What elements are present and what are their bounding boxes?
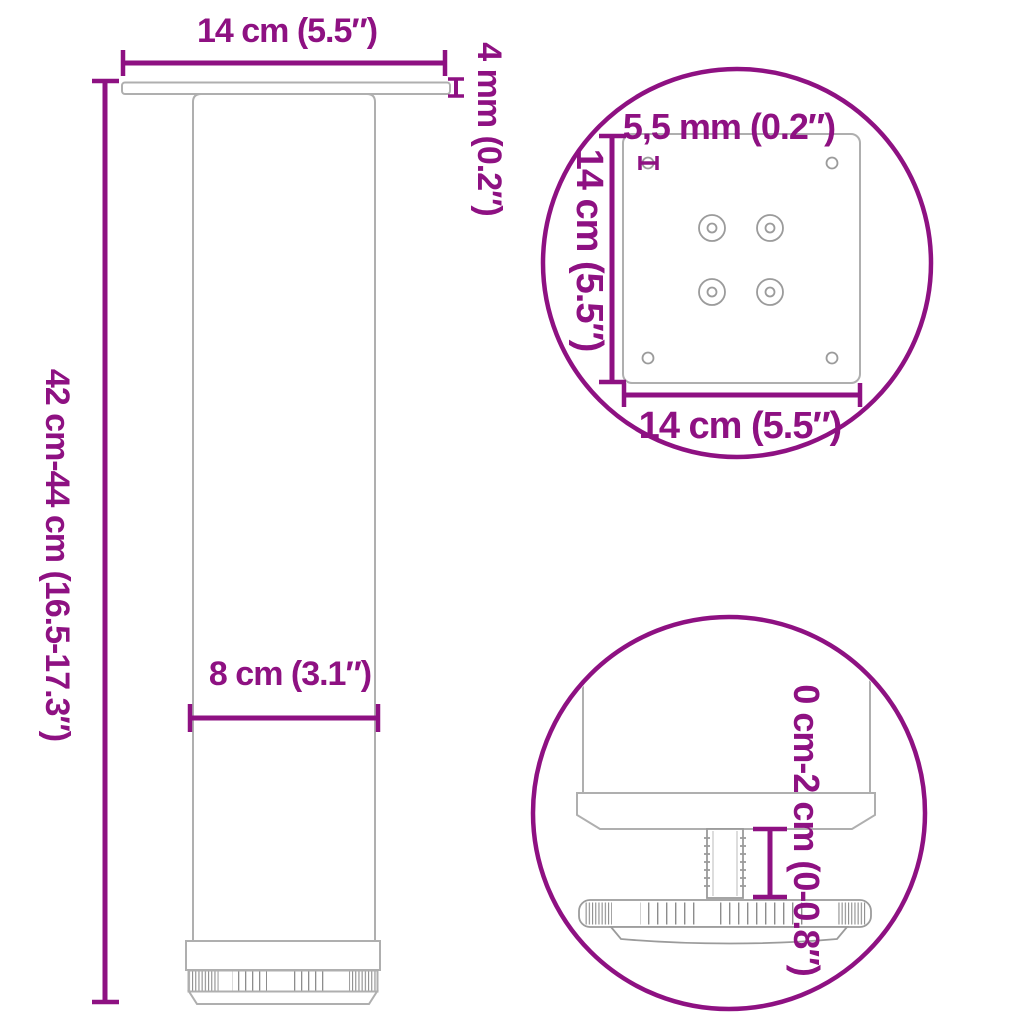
mounting-plate-side (122, 83, 450, 95)
foot-detail-circle (533, 617, 925, 1009)
plate-side-label: 14 cm (5.5″) (570, 149, 608, 352)
leg-tube (193, 94, 375, 941)
leg-height-label: 42 cm-44 cm (16.5-17.3″) (40, 369, 74, 741)
foot-collar (186, 941, 380, 970)
foot-adjustment-label: 0 cm-2 cm (0-0.8″) (788, 684, 824, 975)
table-leg-drawing (122, 83, 450, 1005)
line-art (0, 0, 1024, 1024)
foot-collar-detail (577, 793, 875, 829)
leg-diameter-label: 8 cm (3.1″) (209, 657, 371, 691)
leg-height-dimension (92, 81, 119, 1002)
adjustable-foot (579, 900, 871, 944)
plate-bottom-label: 14 cm (5.5″) (639, 407, 842, 445)
product-dimension-diagram: 14 cm (5.5″) 4 mm (0.2″) 42 cm-44 cm (16… (0, 0, 1024, 1024)
threaded-rod (704, 829, 746, 898)
plate-thickness-label: 4 mm (0.2″) (472, 42, 506, 215)
foot-base (189, 992, 377, 1005)
plate-bottom-dimension (624, 383, 860, 407)
mounting-plate-top (623, 134, 860, 383)
leg-diameter-dimension (190, 704, 378, 732)
hole-diameter-label: 5,5 mm (0.2″) (623, 109, 835, 145)
plate-width-label: 14 cm (5.5″) (197, 14, 377, 48)
plate-width-dimension (123, 50, 445, 76)
